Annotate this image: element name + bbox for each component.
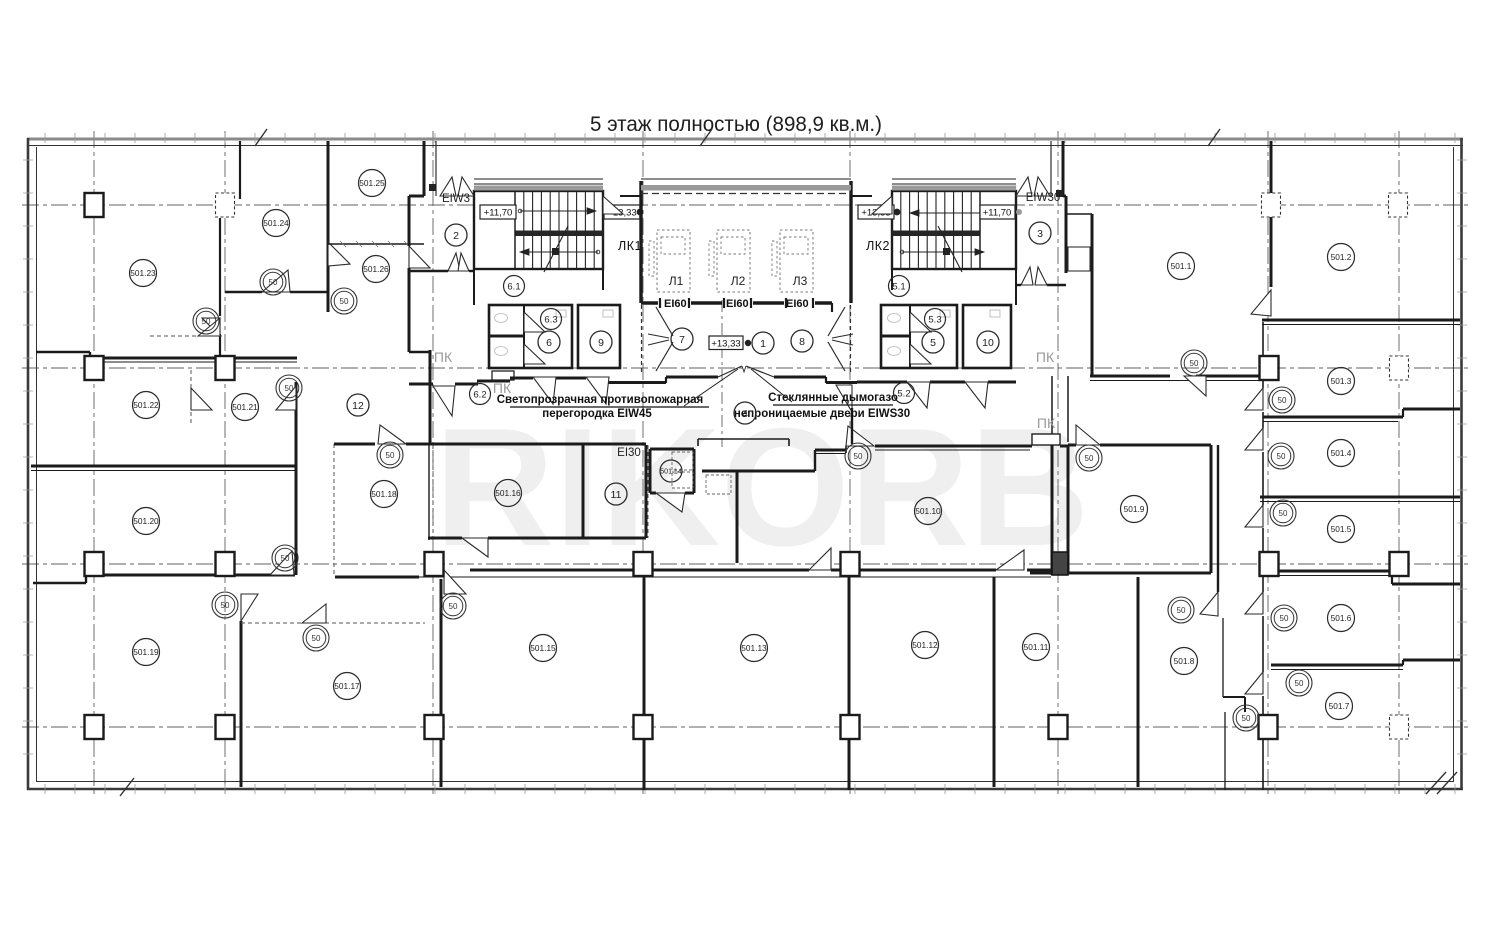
svg-text:50: 50 [269, 278, 278, 287]
svg-text:501.24: 501.24 [263, 218, 289, 228]
svg-text:ПК: ПК [1037, 415, 1056, 431]
svg-text:9: 9 [598, 337, 604, 349]
svg-text:7: 7 [679, 334, 685, 346]
svg-text:501.16: 501.16 [495, 488, 521, 498]
svg-text:501.9: 501.9 [1124, 504, 1145, 514]
svg-text:непроницаемые двери EIWS30: непроницаемые двери EIWS30 [734, 408, 910, 420]
svg-text:3: 3 [1037, 228, 1043, 240]
svg-text:501.22: 501.22 [133, 400, 159, 410]
svg-text:1: 1 [760, 338, 766, 350]
svg-text:50: 50 [1279, 509, 1288, 518]
svg-text:501.3: 501.3 [1331, 376, 1352, 386]
svg-text:50: 50 [340, 297, 349, 306]
svg-text:11: 11 [611, 489, 622, 501]
svg-text:50: 50 [1278, 396, 1287, 405]
svg-text:501.20: 501.20 [133, 516, 159, 526]
svg-text:EIW3: EIW3 [442, 193, 470, 205]
svg-text:501.2: 501.2 [1331, 252, 1352, 262]
svg-text:Л3: Л3 [793, 274, 808, 288]
svg-text:ПК: ПК [493, 380, 512, 396]
svg-text:501.11: 501.11 [1024, 642, 1049, 652]
svg-text:+13,33: +13,33 [711, 339, 740, 350]
svg-text:50: 50 [1280, 614, 1289, 623]
svg-text:6: 6 [546, 337, 552, 349]
svg-text:5: 5 [930, 337, 936, 349]
svg-text:501.13: 501.13 [741, 643, 767, 653]
svg-text:501.26: 501.26 [363, 264, 389, 274]
svg-text:10: 10 [982, 337, 994, 349]
svg-text:+11,70: +11,70 [484, 208, 513, 219]
svg-text:ЛК1: ЛК1 [618, 239, 642, 253]
svg-text:501.1: 501.1 [1171, 261, 1192, 271]
svg-text:50: 50 [1277, 452, 1286, 461]
svg-text:6.2: 6.2 [473, 389, 486, 400]
svg-text:50: 50 [202, 317, 211, 326]
svg-text:EIW30: EIW30 [1026, 192, 1061, 204]
svg-text:RIKORB: RIKORB [435, 393, 1090, 581]
svg-text:ПК: ПК [434, 349, 453, 365]
svg-text:501.14: 501.14 [660, 469, 682, 476]
svg-text:50: 50 [1085, 454, 1094, 463]
svg-text:перегородка EIW45: перегородка EIW45 [542, 408, 652, 420]
svg-text:50: 50 [854, 452, 863, 461]
svg-text:50: 50 [221, 601, 230, 610]
svg-text:Л2: Л2 [731, 274, 746, 288]
svg-text:ПК: ПК [1036, 349, 1055, 365]
svg-text:EI30: EI30 [617, 447, 641, 459]
svg-text:501.4: 501.4 [1331, 448, 1352, 458]
svg-text:50: 50 [1295, 679, 1304, 688]
svg-text:501.15: 501.15 [530, 643, 556, 653]
svg-text:50: 50 [1177, 606, 1186, 615]
svg-text:4: 4 [742, 408, 748, 420]
svg-text:+11,70: +11,70 [983, 208, 1012, 219]
svg-text:ЛК2: ЛК2 [866, 239, 890, 253]
svg-text:50: 50 [449, 602, 458, 611]
svg-text:501.12: 501.12 [912, 640, 938, 650]
svg-text:EI60: EI60 [786, 298, 809, 310]
svg-text:501.10: 501.10 [915, 506, 941, 516]
svg-text:501.7: 501.7 [1329, 701, 1350, 711]
svg-text:501.23: 501.23 [130, 268, 156, 278]
svg-text:50: 50 [1190, 359, 1199, 368]
svg-text:8: 8 [799, 336, 805, 348]
svg-text:501.21: 501.21 [232, 402, 258, 412]
svg-text:5.3: 5.3 [928, 314, 941, 325]
svg-text:50: 50 [281, 554, 290, 563]
svg-text:501.6: 501.6 [1331, 613, 1352, 623]
svg-text:Светопрозрачная противопожарна: Светопрозрачная противопожарная [497, 394, 704, 406]
svg-text:EI60: EI60 [664, 298, 687, 310]
svg-text:50: 50 [386, 451, 395, 460]
svg-text:12: 12 [352, 400, 364, 412]
svg-text:501.25: 501.25 [359, 178, 385, 188]
svg-text:2: 2 [453, 230, 459, 242]
svg-text:50: 50 [312, 634, 321, 643]
svg-text:6.1: 6.1 [507, 281, 520, 292]
svg-text:501.5: 501.5 [1331, 524, 1352, 534]
svg-text:501.18: 501.18 [371, 489, 397, 499]
svg-text:Л1: Л1 [669, 274, 684, 288]
svg-text:5.2: 5.2 [897, 388, 910, 399]
svg-text:501.19: 501.19 [133, 647, 159, 657]
svg-text:50: 50 [285, 384, 294, 393]
svg-text:5 этаж полностью (898,9 кв.м.): 5 этаж полностью (898,9 кв.м.) [590, 112, 882, 136]
svg-text:50: 50 [1242, 714, 1251, 723]
svg-text:EI60: EI60 [726, 298, 749, 310]
svg-text:501.8: 501.8 [1174, 656, 1195, 666]
svg-text:501.17: 501.17 [334, 681, 360, 691]
svg-text:5.1: 5.1 [892, 281, 905, 292]
svg-text:6.3: 6.3 [544, 314, 557, 325]
